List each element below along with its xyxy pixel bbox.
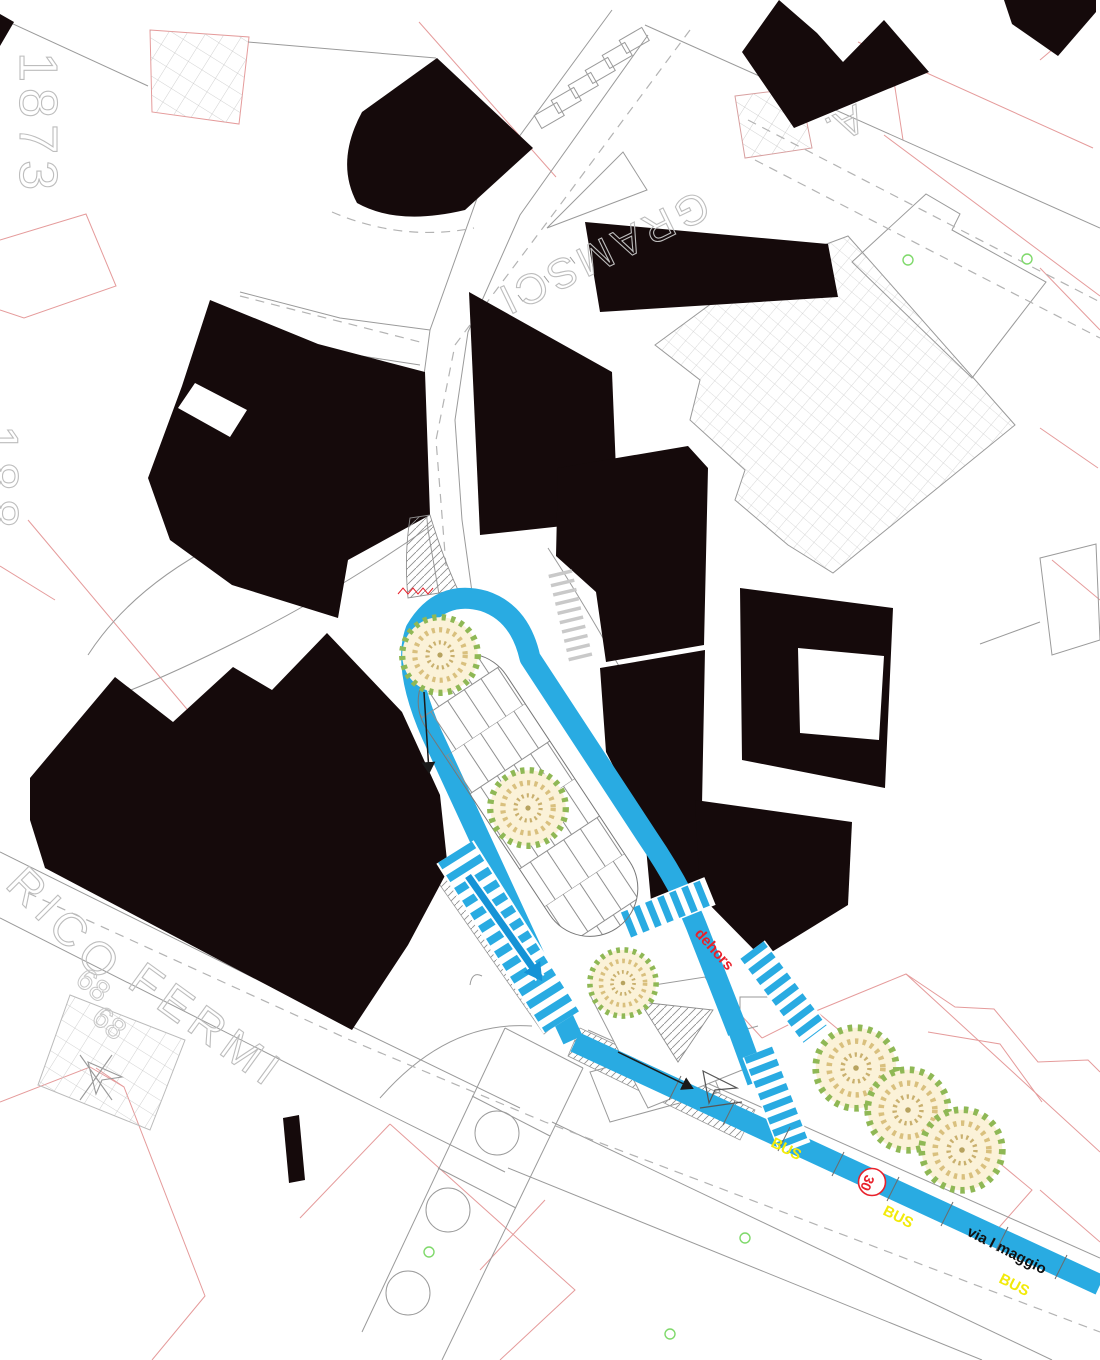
- building: [0, 14, 14, 46]
- tree-icon: [490, 770, 566, 846]
- zebra-crossing-gray: [560, 572, 582, 664]
- tree-icon: [922, 1110, 1003, 1191]
- building-with-courtyard: [740, 588, 893, 788]
- court-hatch: [150, 30, 249, 124]
- label-cadastral-1873: 1873: [8, 52, 68, 196]
- building: [695, 800, 852, 958]
- label-cadastral-188: 188: [0, 425, 28, 536]
- building: [283, 1115, 305, 1183]
- speed-30-badge: 30: [857, 1169, 885, 1196]
- label-bus-lane: BUS: [996, 1270, 1032, 1300]
- building-with-courtyard: [148, 300, 430, 618]
- site-plan-page: 30 1873 188 GRAMSCI A. RICO FERMI 68 68 …: [0, 0, 1100, 1360]
- tree-icon: [590, 950, 656, 1016]
- tree-icon: [402, 617, 478, 693]
- building: [1004, 0, 1096, 56]
- site-plan-map: 30 1873 188 GRAMSCI A. RICO FERMI 68 68 …: [0, 0, 1100, 1360]
- building: [347, 58, 533, 217]
